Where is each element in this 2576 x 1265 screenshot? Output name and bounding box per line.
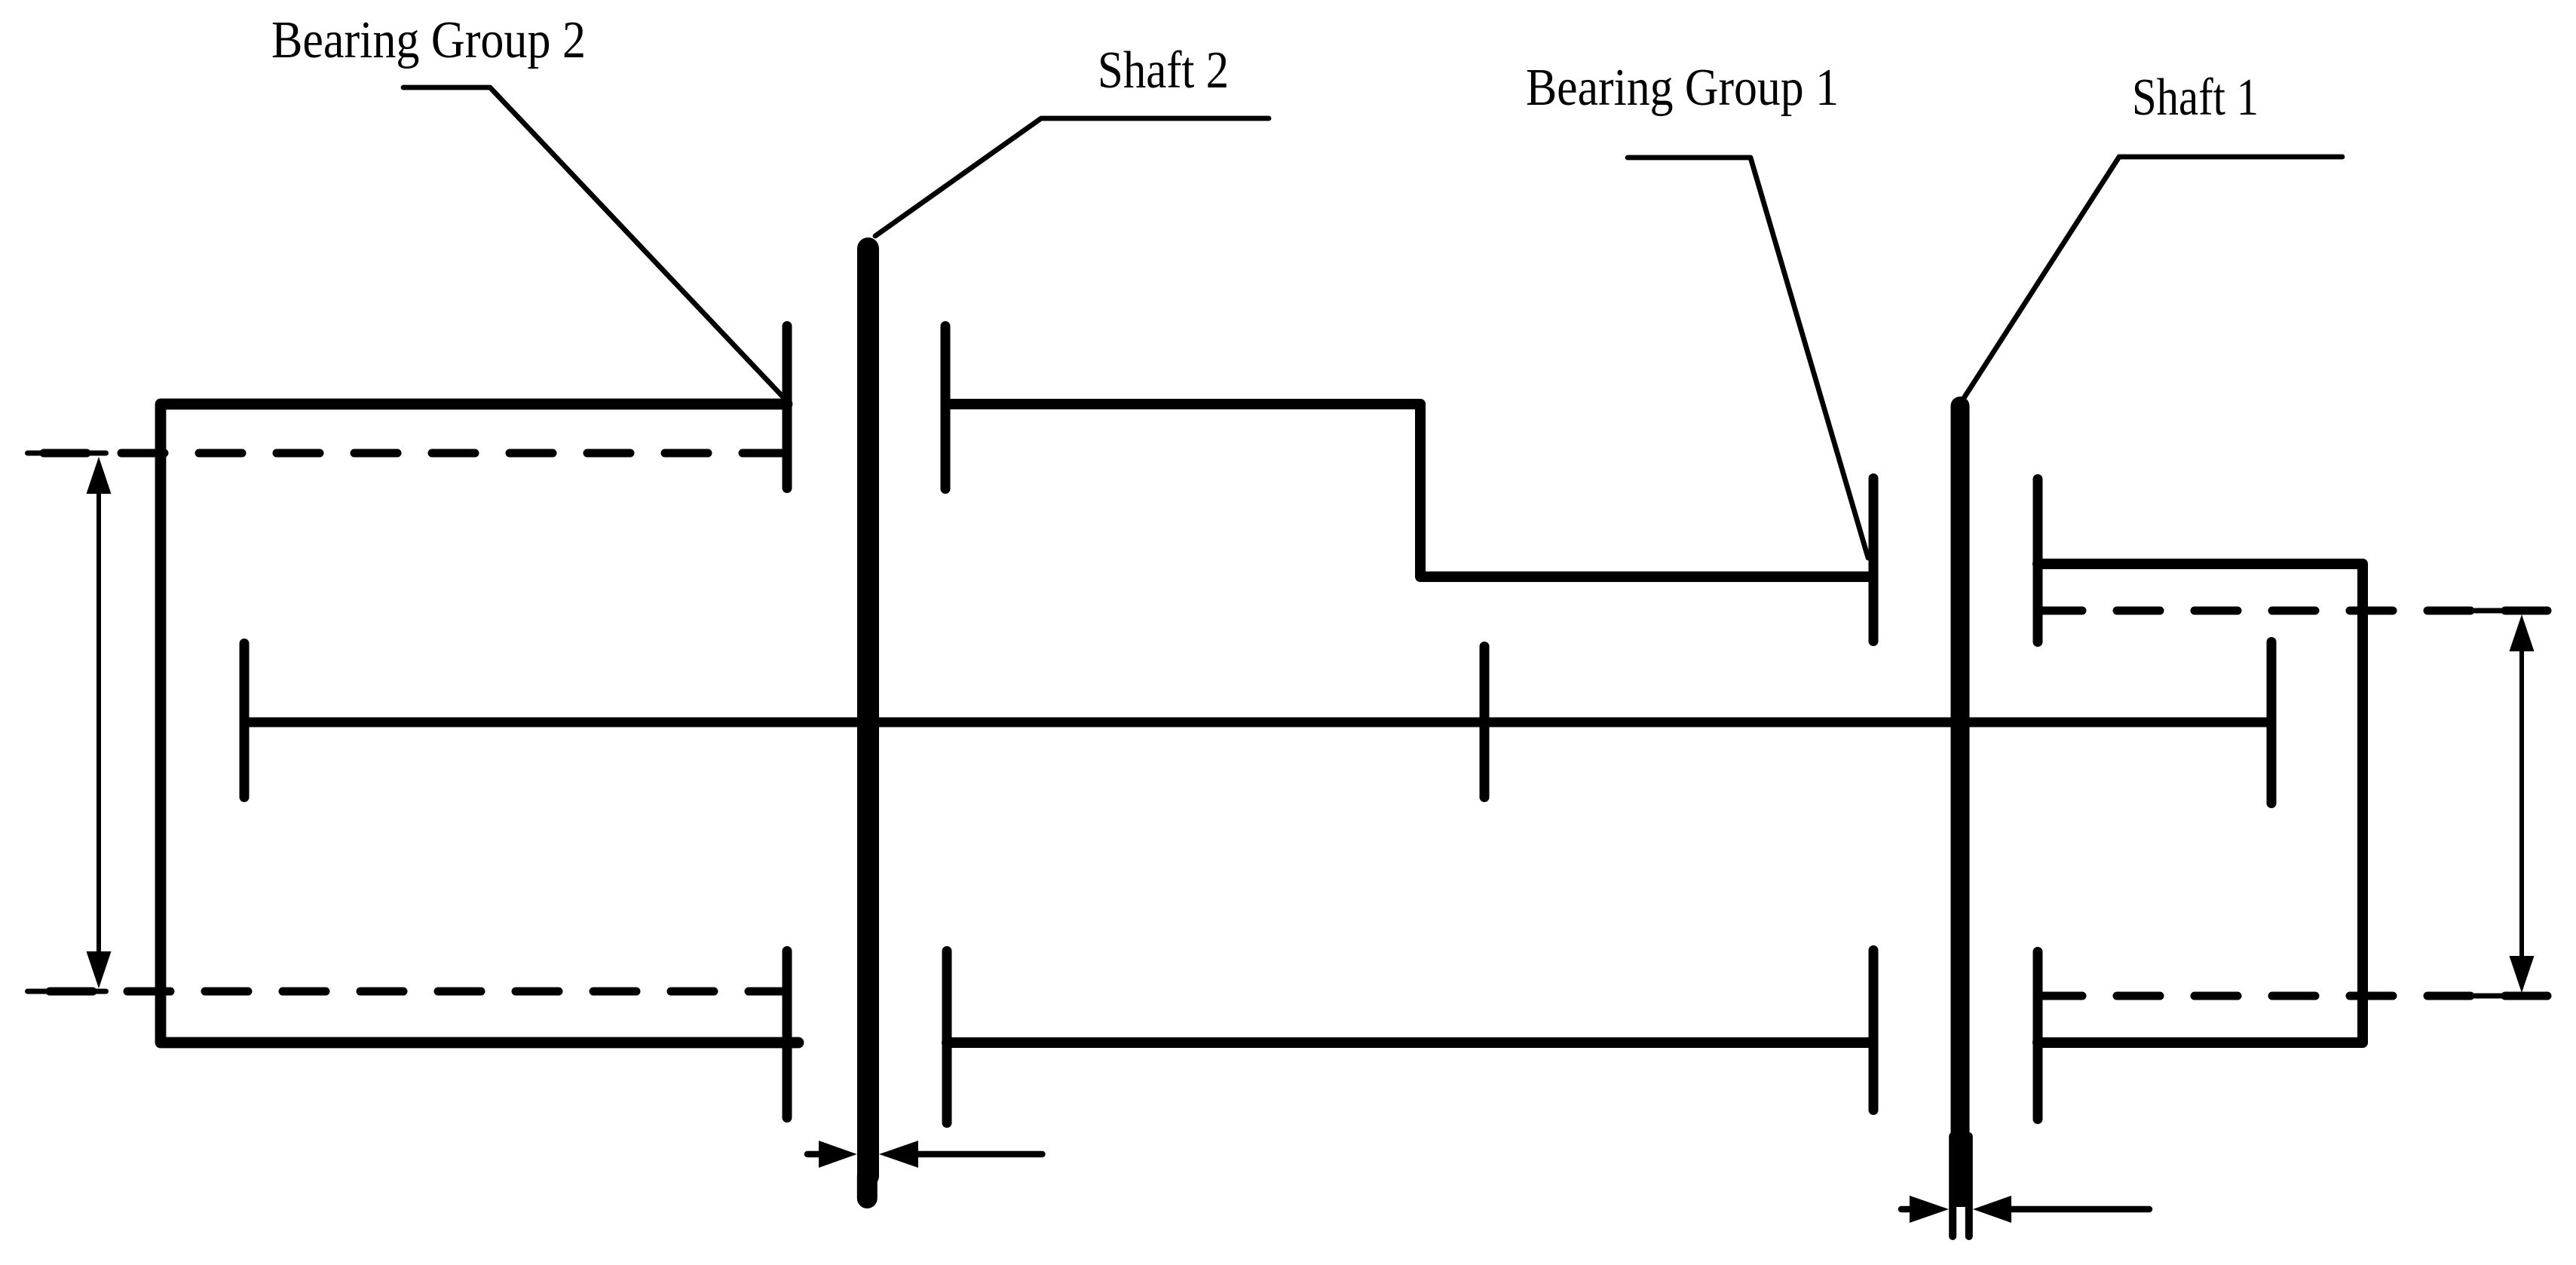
svg-text:Shaft 2: Shaft 2	[1098, 41, 1229, 100]
svg-text:Shaft 1: Shaft 1	[2132, 69, 2259, 127]
svg-text:Bearing Group 1: Bearing Group 1	[1526, 59, 1839, 117]
svg-text:Bearing Group 2: Bearing Group 2	[271, 11, 586, 69]
